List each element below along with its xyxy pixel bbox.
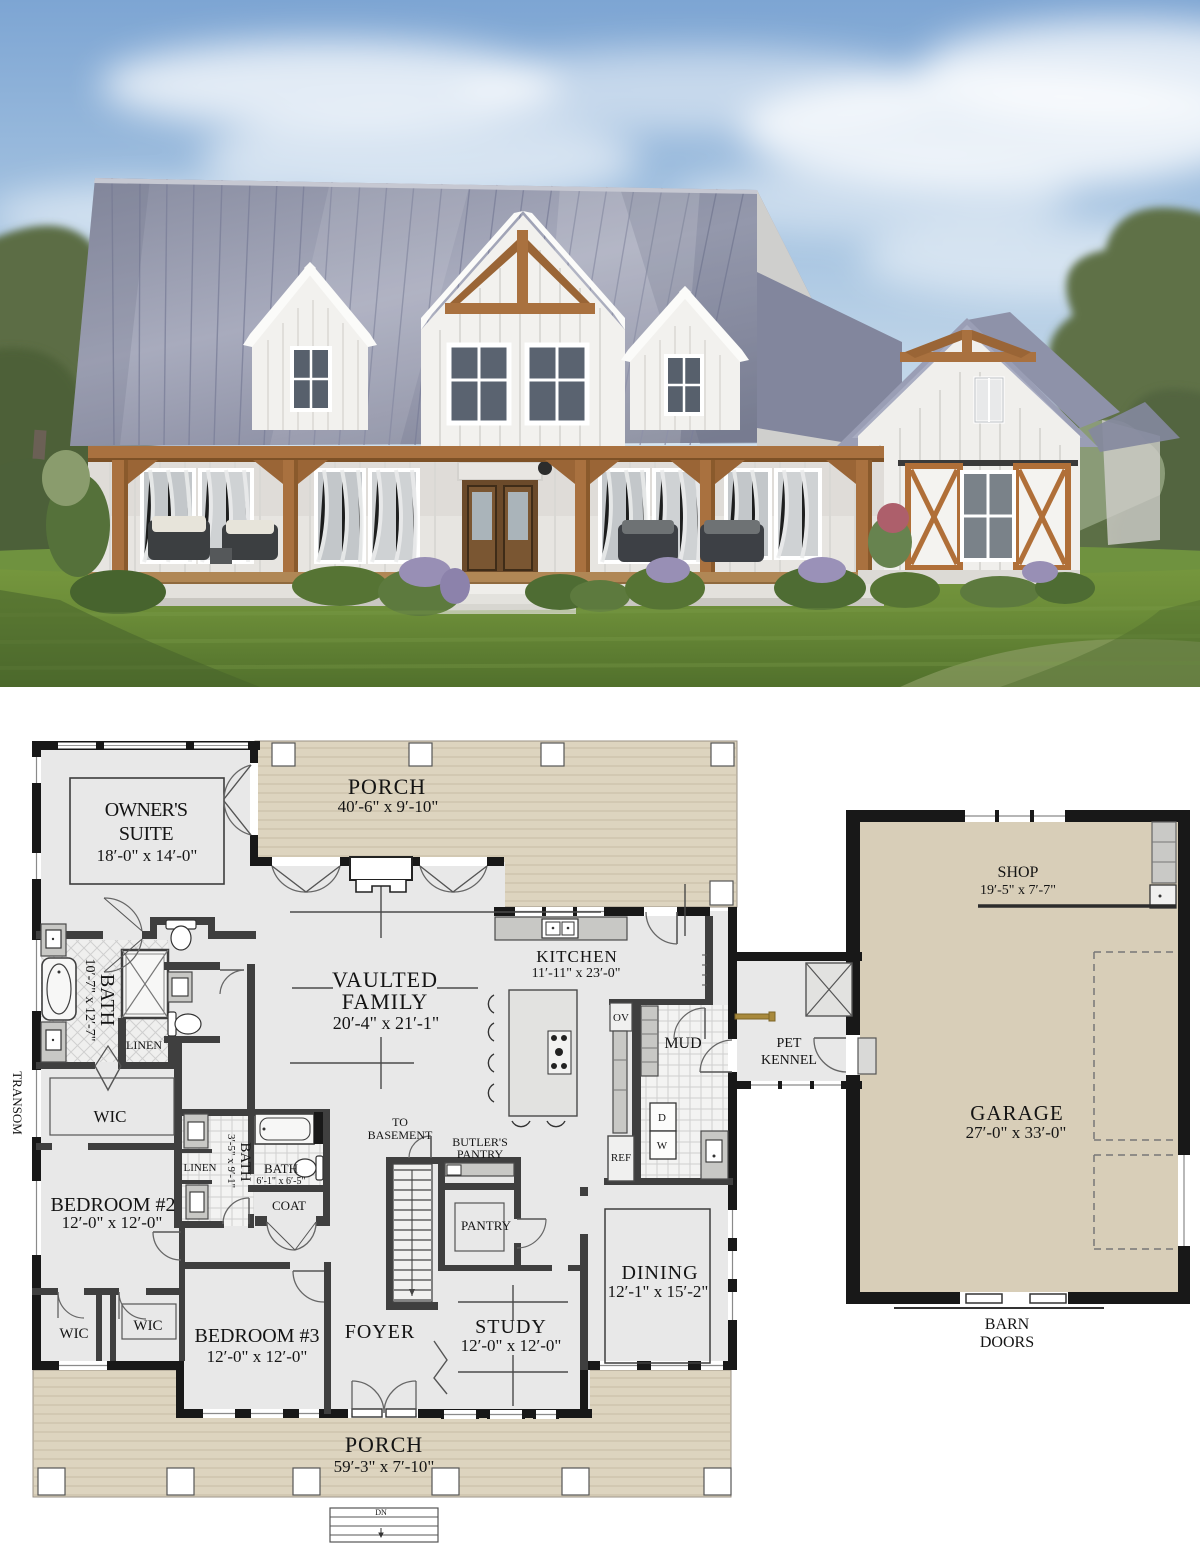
svg-text:DOORS: DOORS	[980, 1334, 1034, 1351]
svg-text:40′-6" x 9′-10": 40′-6" x 9′-10"	[338, 797, 439, 816]
svg-text:WIC: WIC	[93, 1107, 126, 1126]
svg-text:TO: TO	[392, 1115, 408, 1129]
svg-text:BATH: BATH	[237, 1142, 253, 1181]
svg-text:BARN: BARN	[985, 1316, 1030, 1333]
svg-text:TRANSOM: TRANSOM	[10, 1071, 25, 1135]
svg-text:BATH: BATH	[264, 1161, 298, 1176]
svg-text:12′-0" x 12′-0": 12′-0" x 12′-0"	[62, 1213, 163, 1232]
svg-text:DN: DN	[375, 1508, 387, 1517]
svg-text:BASEMENT: BASEMENT	[368, 1128, 433, 1142]
svg-text:12′-0" x 12′-0": 12′-0" x 12′-0"	[207, 1347, 308, 1366]
svg-text:3′-5" x 9′-1": 3′-5" x 9′-1"	[225, 1134, 237, 1188]
svg-text:PET: PET	[777, 1036, 802, 1051]
svg-text:LINEN: LINEN	[184, 1162, 217, 1174]
svg-text:MUD: MUD	[664, 1035, 701, 1052]
svg-text:27′-0" x 33′-0": 27′-0" x 33′-0"	[966, 1123, 1067, 1142]
svg-text:KITCHEN: KITCHEN	[536, 947, 618, 966]
svg-text:59′-3" x 7′-10": 59′-3" x 7′-10"	[334, 1457, 435, 1476]
svg-text:KENNEL: KENNEL	[761, 1053, 817, 1068]
svg-text:BEDROOM #3: BEDROOM #3	[194, 1325, 319, 1347]
svg-text:PANTRY: PANTRY	[457, 1147, 504, 1161]
svg-text:WIC: WIC	[133, 1318, 162, 1334]
svg-text:PANTRY: PANTRY	[461, 1218, 512, 1233]
svg-text:BATH: BATH	[96, 974, 118, 1026]
svg-text:COAT: COAT	[272, 1198, 306, 1213]
svg-text:10′-7" x 12′-7": 10′-7" x 12′-7"	[82, 959, 97, 1042]
svg-text:DINING: DINING	[621, 1262, 698, 1284]
svg-text:FOYER: FOYER	[345, 1321, 416, 1343]
svg-text:12′-0" x 12′-0": 12′-0" x 12′-0"	[461, 1336, 562, 1355]
svg-text:OV: OV	[613, 1012, 629, 1024]
svg-text:6′-1" x 6′-5": 6′-1" x 6′-5"	[256, 1176, 305, 1187]
svg-text:PORCH: PORCH	[345, 1432, 423, 1457]
svg-text:STUDY: STUDY	[475, 1316, 547, 1338]
svg-text:D: D	[658, 1112, 666, 1124]
svg-text:WIC: WIC	[59, 1326, 88, 1342]
svg-text:LINEN: LINEN	[126, 1038, 162, 1052]
svg-text:GARAGE: GARAGE	[970, 1101, 1064, 1125]
svg-text:SUITE: SUITE	[119, 823, 173, 845]
svg-text:SHOP: SHOP	[998, 864, 1039, 881]
svg-text:20′-4" x 21′-1": 20′-4" x 21′-1"	[333, 1013, 440, 1033]
svg-text:FAMILY: FAMILY	[342, 989, 429, 1014]
svg-text:OWNER'S: OWNER'S	[105, 799, 187, 821]
svg-text:PORCH: PORCH	[348, 774, 426, 799]
svg-text:18′-0" x 14′-0": 18′-0" x 14′-0"	[97, 846, 198, 865]
svg-text:11′-11" x 23′-0": 11′-11" x 23′-0"	[532, 966, 621, 981]
svg-text:W: W	[657, 1140, 668, 1152]
svg-text:12′-1" x 15′-2": 12′-1" x 15′-2"	[608, 1282, 709, 1301]
svg-text:19′-5" x 7′-7": 19′-5" x 7′-7"	[980, 883, 1056, 898]
svg-text:REF: REF	[611, 1152, 631, 1164]
